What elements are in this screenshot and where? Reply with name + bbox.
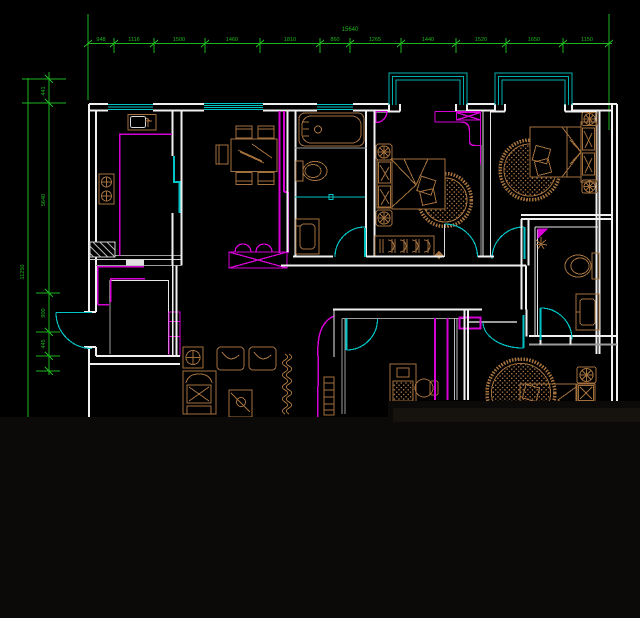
svg-text:1500: 1500	[173, 37, 185, 43]
svg-text:1440: 1440	[422, 37, 434, 43]
svg-text:900: 900	[41, 308, 47, 317]
svg-text:5640: 5640	[41, 194, 47, 206]
svg-text:1810: 1810	[284, 37, 296, 43]
svg-text:1116: 1116	[128, 37, 139, 43]
svg-text:441: 441	[41, 86, 47, 95]
svg-text:1265: 1265	[369, 37, 381, 43]
svg-text:445: 445	[41, 339, 47, 348]
svg-text:948: 948	[96, 37, 105, 43]
svg-text:1520: 1520	[475, 37, 487, 43]
svg-text:11250: 11250	[20, 265, 26, 280]
svg-text:1150: 1150	[581, 37, 593, 43]
svg-text:1460: 1460	[226, 37, 238, 43]
svg-text:15640: 15640	[342, 27, 359, 33]
svg-text:860: 860	[330, 37, 339, 43]
svg-text:1650: 1650	[528, 37, 540, 43]
